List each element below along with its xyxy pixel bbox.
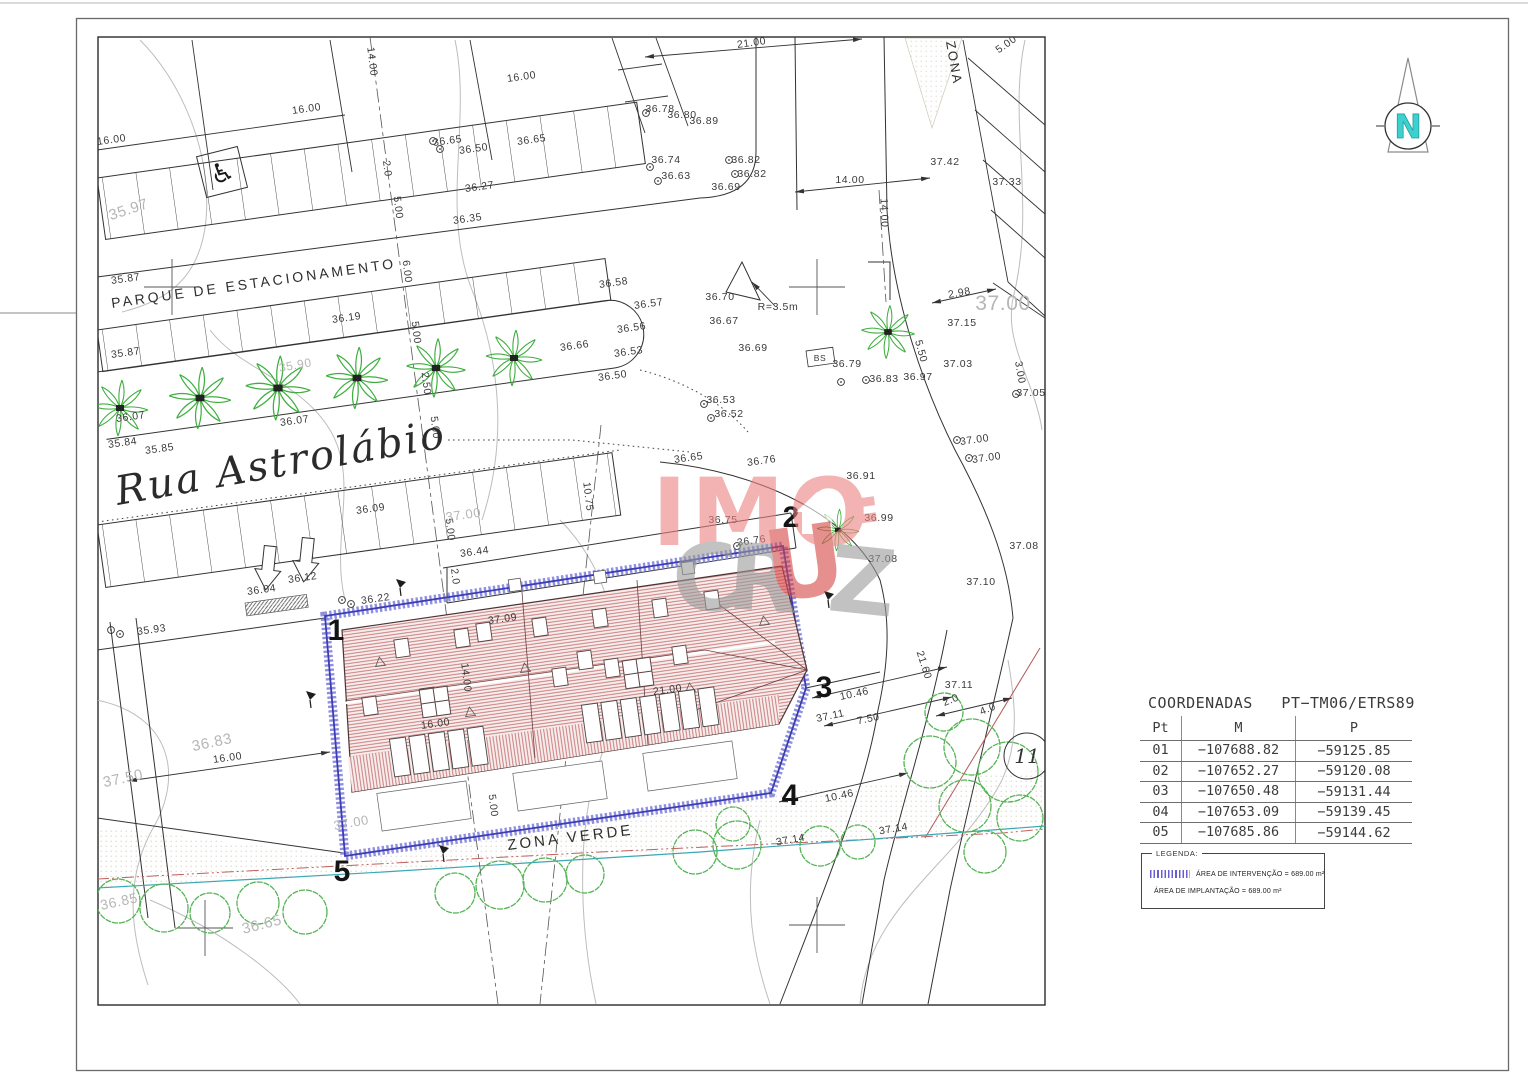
legend-item-label: ÁREA DE IMPLANTAÇÃO = 689.00 m² xyxy=(1154,888,1282,895)
site-plan-sheet: { "north": { "label": "N" }, "watermark"… xyxy=(0,0,1528,1080)
coordinates-title: COORDENADAS PT−TM06/ETRS89 xyxy=(1148,694,1412,712)
spot-marker-dot xyxy=(956,439,958,441)
lot-number: 11 xyxy=(1014,744,1039,768)
map-label: 36.67 xyxy=(709,315,738,327)
legend-item-intervention: ÁREA DE INTERVENÇÃO = 689.00 m² xyxy=(1150,870,1324,878)
map-label: 37.15 xyxy=(947,317,976,329)
map-label: 2.0 xyxy=(448,568,462,586)
table-row: 01 −107688.82 −59125.85 xyxy=(1140,741,1412,762)
table-row: 03 −107650.48 −59131.44 xyxy=(1140,782,1412,803)
cell-p: −59139.45 xyxy=(1296,804,1412,820)
legend-item-implantacao: ÁREA DE IMPLANTAÇÃO = 689.00 m² xyxy=(1154,888,1282,895)
watermark-z: Z xyxy=(824,525,902,638)
map-label: 37.33 xyxy=(992,176,1021,188)
legend-item-label: ÁREA DE INTERVENÇÃO = 689.00 m² xyxy=(1196,871,1324,878)
map-label: 36.70 xyxy=(705,291,734,303)
spot-marker-dot xyxy=(840,381,842,383)
roof-window xyxy=(394,638,410,658)
north-arrow-icon: N xyxy=(1372,52,1444,192)
cell-m: −107653.09 xyxy=(1182,803,1296,823)
spot-marker-dot xyxy=(350,603,352,605)
contour-label: 37.00 xyxy=(975,292,1031,315)
roof-window xyxy=(454,628,470,648)
vertex-number: 5 xyxy=(334,855,351,888)
vertex-number: 4 xyxy=(782,779,799,812)
table-header-row: Pt M P xyxy=(1140,716,1412,741)
map-label: 37.08 xyxy=(1009,540,1038,552)
vertex-number: 1 xyxy=(328,614,345,647)
col-header-p: P xyxy=(1296,720,1412,736)
map-label: 37.05 xyxy=(1016,387,1045,399)
intervention-swatch xyxy=(1150,870,1190,878)
cell-p: −59120.08 xyxy=(1296,763,1412,779)
cell-pt: 04 xyxy=(1140,803,1182,823)
map-label: 2.0 xyxy=(380,160,394,178)
vertex-number: 3 xyxy=(816,671,833,704)
map-label: 36.97 xyxy=(903,371,932,383)
roof-window xyxy=(552,667,568,687)
spot-marker-dot xyxy=(657,180,659,182)
cell-p: −59125.85 xyxy=(1296,743,1412,759)
cell-pt: 02 xyxy=(1140,762,1182,782)
site-plan-canvas: ♿ 16.0016.0016.0021.0014.002.05.006.005.… xyxy=(0,0,1528,1080)
roof-window xyxy=(604,658,620,678)
map-label: 14.00 xyxy=(877,198,890,228)
map-label: 37.10 xyxy=(966,576,995,588)
col-header-pt: Pt xyxy=(1140,716,1182,740)
map-label: 36.69 xyxy=(711,181,740,193)
cell-m: −107688.82 xyxy=(1182,741,1296,761)
cell-p: −59144.62 xyxy=(1296,825,1412,841)
table-row: 02 −107652.27 −59120.08 xyxy=(1140,762,1412,783)
map-label: 36.69 xyxy=(738,342,767,354)
roof-window xyxy=(652,598,668,618)
map-label: R=3.5m xyxy=(758,301,799,313)
watermark-logo: IMO C R U Z xyxy=(652,459,901,639)
roof-window xyxy=(672,645,688,665)
roof-window xyxy=(362,696,378,716)
map-label: 36.82 xyxy=(731,154,760,166)
north-label: N xyxy=(1394,107,1422,146)
map-label: 36.82 xyxy=(737,168,766,180)
table-row: 04 −107653.09 −59139.45 xyxy=(1140,803,1412,824)
spot-marker-dot xyxy=(110,629,112,631)
map-label: 36.83 xyxy=(869,373,898,385)
spot-marker-dot xyxy=(968,457,970,459)
map-label: 36.63 xyxy=(661,170,690,182)
cell-p: −59131.44 xyxy=(1296,784,1412,800)
map-label: 37.03 xyxy=(943,358,972,370)
roof-vent xyxy=(508,578,522,592)
spot-marker-dot xyxy=(649,166,651,168)
legend-title: LEGENDA: xyxy=(1152,849,1202,858)
map-label: 36.52 xyxy=(714,408,743,420)
map-label: 14.00 xyxy=(835,174,864,186)
map-label: 36.53 xyxy=(706,394,735,406)
map-label: 36.74 xyxy=(651,154,680,166)
roof-window xyxy=(592,608,608,628)
roof-window xyxy=(532,617,548,637)
cell-m: −107652.27 xyxy=(1182,762,1296,782)
spot-marker-dot xyxy=(710,417,712,419)
roof-vent xyxy=(593,570,607,584)
spot-marker-dot xyxy=(703,403,705,405)
map-label: 36.79 xyxy=(832,358,861,370)
cell-pt: 01 xyxy=(1140,741,1182,761)
cell-pt: 05 xyxy=(1140,823,1182,843)
spot-marker-dot xyxy=(439,148,441,150)
spot-marker-dot xyxy=(734,173,736,175)
table-row: 05 −107685.86 −59144.62 xyxy=(1140,823,1412,844)
map-label: BS xyxy=(814,353,827,363)
legend-box: LEGENDA: ÁREA DE INTERVENÇÃO = 689.00 m²… xyxy=(1141,853,1325,909)
map-label: 36.89 xyxy=(689,115,718,127)
cell-m: −107685.86 xyxy=(1182,823,1296,843)
map-label: 37.11 xyxy=(945,679,974,691)
spot-marker-dot xyxy=(728,159,730,161)
spot-marker-dot xyxy=(119,633,121,635)
cell-pt: 03 xyxy=(1140,782,1182,802)
col-header-m: M xyxy=(1182,716,1296,740)
spot-marker-dot xyxy=(341,599,343,601)
spot-marker-dot xyxy=(865,379,867,381)
cell-m: −107650.48 xyxy=(1182,782,1296,802)
coordinates-table: COORDENADAS PT−TM06/ETRS89 Pt M P 01 −10… xyxy=(1140,694,1412,844)
roof-window xyxy=(577,650,593,670)
map-label: 37.42 xyxy=(930,156,959,168)
